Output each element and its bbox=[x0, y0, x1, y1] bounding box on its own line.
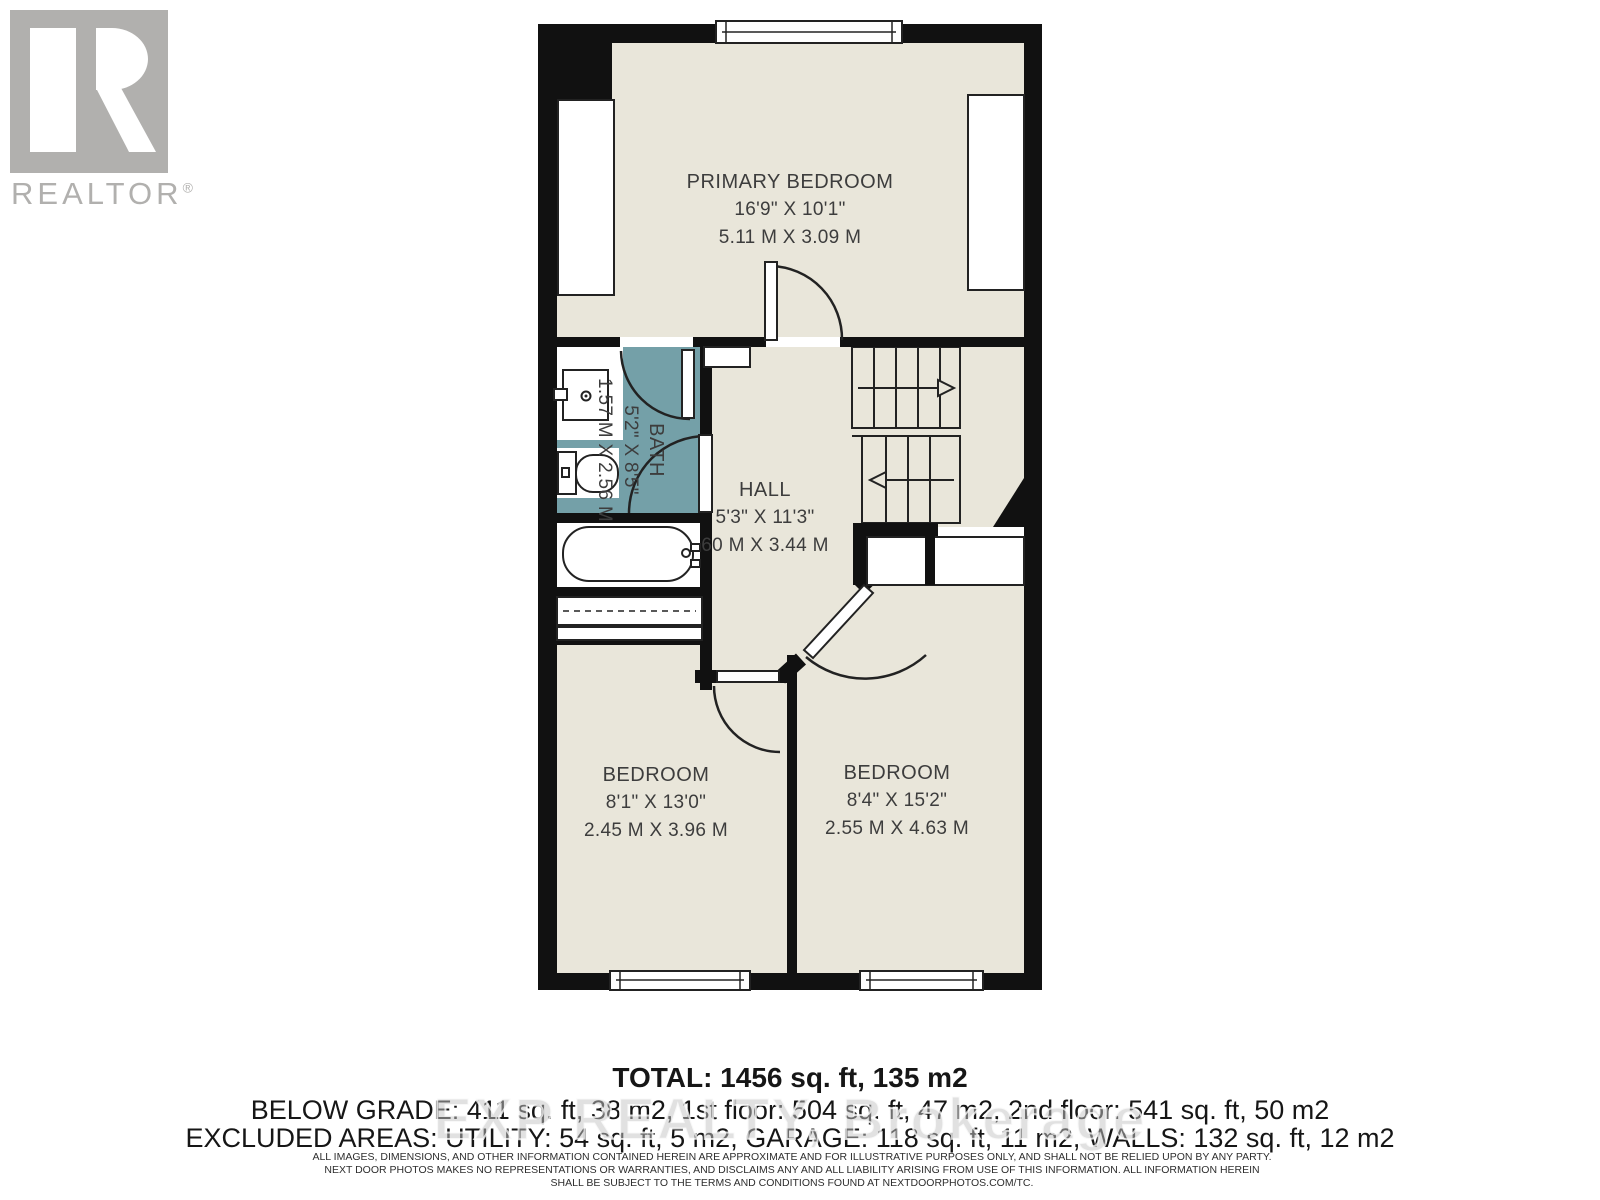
room-name: PRIMARY BEDROOM bbox=[687, 168, 894, 196]
room-dim-metric: 60 M X 3.44 M bbox=[701, 532, 828, 560]
room-dim-imperial: 5'3" X 11'3" bbox=[701, 504, 828, 532]
room-dim-metric: 5.11 M X 3.09 M bbox=[687, 224, 894, 252]
room-dim-imperial: 8'4" X 15'2" bbox=[825, 787, 969, 815]
floor-areas-line: BELOW GRADE: 411 sq. ft, 38 m2, 1st floo… bbox=[0, 1095, 1580, 1126]
hall-label: HALL 5'3" X 11'3" 60 M X 3.44 M bbox=[701, 476, 828, 560]
under-stairs-closet bbox=[867, 537, 1024, 585]
room-name: HALL bbox=[701, 476, 828, 504]
realtor-logo-icon bbox=[10, 10, 168, 173]
room-name: BEDROOM bbox=[825, 759, 969, 787]
disclaimer-line-2: NEXT DOOR PHOTOS MAKES NO REPRESENTATION… bbox=[0, 1164, 1584, 1176]
room-name: BEDROOM bbox=[584, 761, 728, 789]
bathtub-icon bbox=[563, 527, 700, 581]
bedroom-left-closet bbox=[557, 597, 702, 640]
realtor-logo-label: REALTOR bbox=[11, 176, 183, 211]
disclaimer-line-1: ALL IMAGES, DIMENSIONS, AND OTHER INFORM… bbox=[0, 1151, 1584, 1163]
room-dim-metric: 2.45 M X 3.96 M bbox=[584, 817, 728, 845]
room-dim-imperial: 8'1" X 13'0" bbox=[584, 789, 728, 817]
primary-closet-right bbox=[968, 95, 1024, 290]
primary-closet-left bbox=[558, 100, 614, 295]
registered-trademark-symbol: ® bbox=[183, 180, 193, 196]
room-dim-imperial: 5'2" X 8'5" bbox=[617, 378, 643, 522]
room-dim-imperial: 16'9" X 10'1" bbox=[687, 196, 894, 224]
primary-bedroom-label: PRIMARY BEDROOM 16'9" X 10'1" 5.11 M X 3… bbox=[687, 168, 894, 252]
room-dim-metric: 2.55 M X 4.63 M bbox=[825, 815, 969, 843]
window-top bbox=[716, 21, 902, 43]
wall-right bbox=[1024, 24, 1042, 990]
floorplan-page: REALTOR® PRIMARY BEDROOM 16'9" X 10'1" 5… bbox=[0, 0, 1600, 1200]
room-name: BATH bbox=[643, 378, 669, 522]
window-bottom-left bbox=[610, 971, 750, 990]
excluded-areas-line: EXCLUDED AREAS: UTILITY: 54 sq. ft, 5 m2… bbox=[0, 1123, 1580, 1154]
disclaimer-line-3: SHALL BE SUBJECT TO THE TERMS AND CONDIT… bbox=[0, 1177, 1584, 1189]
hall-bulkhead bbox=[704, 347, 750, 367]
bath-label: BATH 5'2" X 8'5" 1.57 M X 2.56 M bbox=[591, 378, 669, 522]
wall-left bbox=[538, 24, 557, 990]
bedroom-left-label: BEDROOM 8'1" X 13'0" 2.45 M X 3.96 M bbox=[584, 761, 728, 845]
room-dim-metric: 1.57 M X 2.56 M bbox=[591, 378, 617, 522]
realtor-logo-wordmark: REALTOR® bbox=[11, 176, 221, 212]
total-area-line: TOTAL: 1456 sq. ft, 135 m2 bbox=[0, 1062, 1580, 1094]
wall-between-bedrooms bbox=[787, 655, 797, 973]
bedroom-right-label: BEDROOM 8'4" X 15'2" 2.55 M X 4.63 M bbox=[825, 759, 969, 843]
window-bottom-right bbox=[860, 971, 983, 990]
